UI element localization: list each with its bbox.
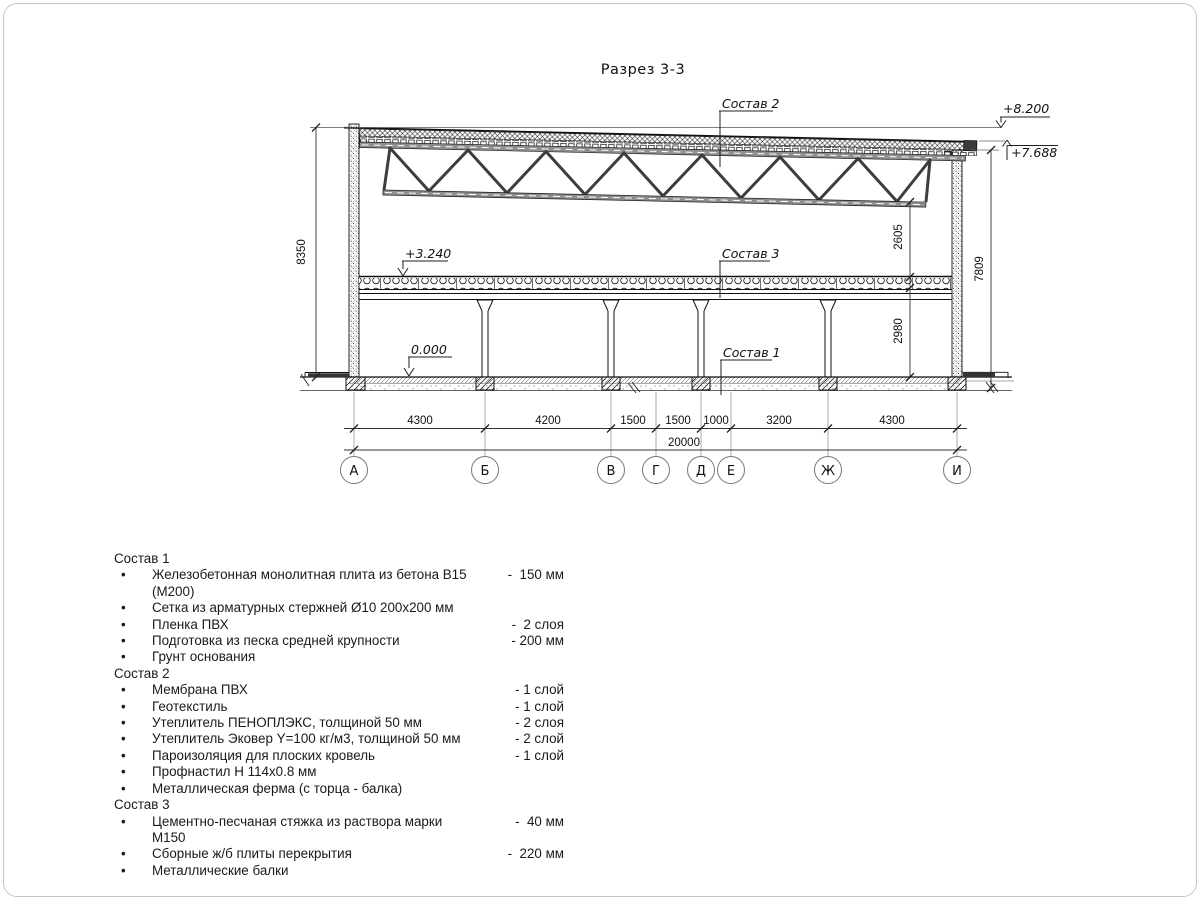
svg-text:7809: 7809 <box>974 256 986 282</box>
axis-d: Д <box>696 464 706 479</box>
grid-lines <box>354 392 957 456</box>
roof-package <box>344 127 977 162</box>
right-wall <box>944 150 962 377</box>
bullet-icon: • <box>114 699 152 715</box>
dim-4300-2: 4300 <box>879 415 905 427</box>
composition-item: •Утеплитель Эковер Y=100 кг/м3, толщиной… <box>114 731 564 747</box>
columns <box>477 300 836 377</box>
axis-e: Е <box>727 464 735 479</box>
svg-text:+3.240: +3.240 <box>405 246 451 261</box>
column <box>603 300 619 377</box>
composition-item: •Пароизоляция для плоских кровель- 1 сло… <box>114 748 564 764</box>
dim-1500-2: 1500 <box>665 415 691 427</box>
composition-item: •Сетка из арматурных стержней Ø10 200х20… <box>114 600 564 616</box>
dim-1500-1: 1500 <box>620 415 646 427</box>
roof-edge-cap <box>964 140 977 150</box>
svg-text:Состав 3: Состав 3 <box>722 246 780 261</box>
left-wall <box>349 124 367 377</box>
bullet-icon: • <box>114 600 152 616</box>
bullet-icon: • <box>114 748 152 764</box>
bullet-icon: • <box>114 846 152 862</box>
composition-item: •Профнастил Н 114х0.8 мм <box>114 764 564 780</box>
axis-i: И <box>952 464 962 479</box>
axis-b: Б <box>481 464 490 479</box>
column <box>693 300 709 377</box>
floor-slab <box>359 277 952 300</box>
dim-right-7809: 7809 <box>970 146 999 392</box>
dim-4300-1: 4300 <box>407 415 433 427</box>
bullet-icon: • <box>114 764 152 780</box>
bullet-icon: • <box>114 781 152 797</box>
composition-title: Состав 1 <box>114 551 564 567</box>
bullet-icon: • <box>114 731 152 747</box>
truss-bottom-chord <box>383 190 926 207</box>
bullet-icon: • <box>114 567 152 600</box>
elevation-0000: 0.000 <box>404 342 452 376</box>
dim-chain-bottom: 4300 4200 1500 1500 1000 3200 4300 20000 <box>344 415 967 454</box>
svg-text:Состав 2: Состав 2 <box>722 96 780 111</box>
composition-item: •Подготовка из песка средней крупности- … <box>114 633 564 649</box>
bullet-icon: • <box>114 715 152 731</box>
bullet-icon: • <box>114 649 152 665</box>
bullet-icon: • <box>114 863 152 879</box>
svg-text:2605: 2605 <box>893 224 905 250</box>
composition-item: •Мембрана ПВХ- 1 слой <box>114 682 564 698</box>
drawing-sheet: Разрез 3-3 <box>0 0 1200 900</box>
ground-slab <box>300 372 1014 393</box>
composition-item: •Грунт основания <box>114 649 564 665</box>
axis-v: В <box>607 464 616 479</box>
composition-title: Состав 3 <box>114 797 564 813</box>
composition-item: •Пленка ПВХ- 2 слоя <box>114 617 564 633</box>
bullet-icon: • <box>114 633 152 649</box>
axis-bubbles: А Б В Г Д Е Ж И <box>341 457 971 484</box>
svg-text:2980: 2980 <box>893 318 905 344</box>
bullet-icon: • <box>114 682 152 698</box>
svg-text:Состав 1: Состав 1 <box>723 345 780 360</box>
svg-text:+8.200: +8.200 <box>1003 101 1049 116</box>
composition-item: •Металлическая ферма (с торца - балка) <box>114 781 564 797</box>
axis-zh: Ж <box>821 464 835 479</box>
svg-text:8350: 8350 <box>296 239 308 265</box>
bullet-icon: • <box>114 814 152 847</box>
dim-4200: 4200 <box>535 415 561 427</box>
composition-legend: Состав 1 •Железобетонная монолитная плит… <box>114 551 564 879</box>
dim-1000: 1000 <box>703 415 729 427</box>
svg-text:0.000: 0.000 <box>411 342 447 357</box>
composition-item: •Цементно-песчаная стяжка из раствора ма… <box>114 814 564 847</box>
elevation-3240: +3.240 <box>398 246 451 276</box>
composition-title: Состав 2 <box>114 666 564 682</box>
dim-3200: 3200 <box>766 415 792 427</box>
right-ledge <box>962 372 1014 393</box>
bullet-icon: • <box>114 617 152 633</box>
axis-a: А <box>350 464 359 479</box>
svg-text:+7.688: +7.688 <box>1011 145 1057 160</box>
composition-item: •Сборные ж/б плиты перекрытия- 220 мм <box>114 846 564 862</box>
column <box>820 300 836 377</box>
composition-item: •Утеплитель ПЕНОПЛЭКС, толщиной 50 мм- 2… <box>114 715 564 731</box>
left-ledge <box>301 373 349 387</box>
composition-item: •Металлические балки <box>114 863 564 879</box>
elevation-8200: +8.200 <box>996 101 1050 128</box>
composition-item: •Железобетонная монолитная плита из бето… <box>114 567 564 600</box>
column <box>477 300 493 377</box>
leader-sostav-3: Состав 3 <box>719 246 780 298</box>
axis-g: Г <box>652 464 660 479</box>
dim-20000: 20000 <box>668 437 700 449</box>
composition-item: •Геотекстиль- 1 слой <box>114 699 564 715</box>
section-drawing: 4300 4200 1500 1500 1000 3200 4300 20000… <box>0 0 1200 520</box>
